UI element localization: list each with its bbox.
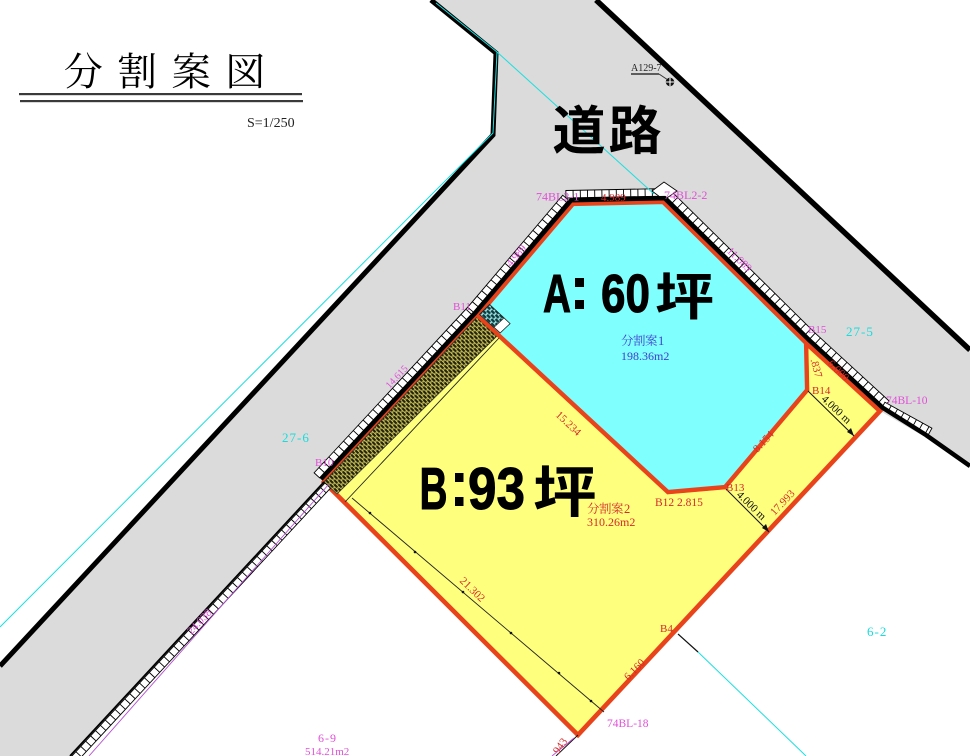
svg-text:27-5: 27-5 [846,324,874,339]
svg-text:B10: B10 [315,457,334,469]
svg-text:4.989: 4.989 [601,192,626,204]
svg-text:198.36m2: 198.36m2 [621,349,669,363]
svg-text:S=1/250: S=1/250 [247,116,295,131]
svg-text:27-6: 27-6 [282,430,310,445]
svg-text:B: B [420,456,448,522]
svg-text:A129-7: A129-7 [631,63,662,74]
svg-text:93: 93 [468,456,525,522]
svg-text:1: 1 [658,334,664,348]
svg-text:74BL2-1: 74BL2-1 [536,190,579,204]
svg-text:B4: B4 [660,623,673,635]
svg-text:74BL-18: 74BL-18 [607,718,649,730]
svg-text:B12 2.815: B12 2.815 [655,497,703,509]
svg-text:B15: B15 [808,324,827,336]
svg-text:6-9: 6-9 [318,731,337,745]
svg-text:74BL2-2: 74BL2-2 [664,188,707,202]
svg-text:A: A [543,264,571,324]
svg-text:74BL-10: 74BL-10 [886,395,928,407]
svg-text:310.26m2: 310.26m2 [587,515,635,529]
svg-text:514.21m2: 514.21m2 [305,746,349,756]
svg-text:B11: B11 [453,301,471,313]
svg-text:60: 60 [601,264,650,324]
svg-text:2: 2 [624,502,630,516]
svg-text:6-2: 6-2 [867,624,887,639]
